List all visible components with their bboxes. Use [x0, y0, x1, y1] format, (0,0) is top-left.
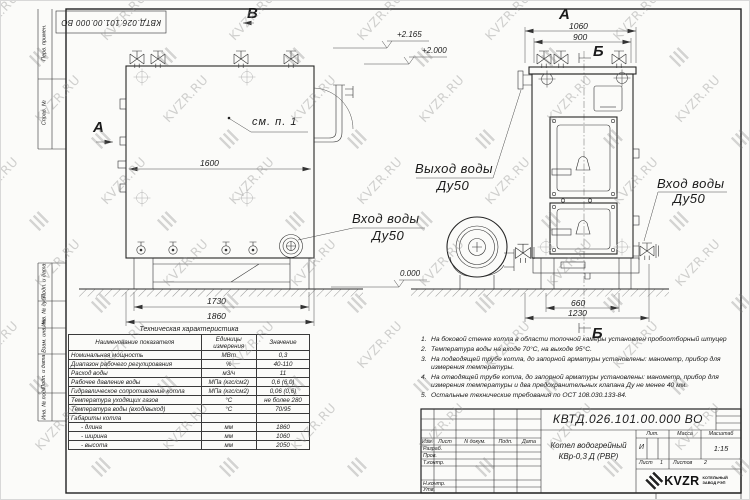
spec-header-unit: Единицы измерения	[201, 335, 256, 351]
dim-1730: 1730	[207, 297, 226, 306]
spec-row: Расход водым3/ч11	[69, 369, 310, 378]
spec-row: Температура уходящих газов°Сне более 280	[69, 396, 310, 405]
view-b-label: В	[247, 6, 258, 21]
tb-header-data: Дата	[517, 440, 541, 445]
tb-row-nkontr: Н.контр.	[423, 482, 445, 487]
tb-lit-value: И	[636, 444, 647, 451]
tb-header-ndoc: N докум.	[456, 440, 494, 445]
tb-lit-header: Лит.	[636, 432, 669, 437]
company-logo: KVZR КОТЕЛЬНЫЙ ЗАВОД РЭП	[638, 470, 738, 491]
dim-900: 900	[573, 33, 587, 42]
spec-header-row: Наименование показателя Единицы измерени…	[69, 335, 310, 351]
tb-sheet-label: Лист	[639, 461, 653, 466]
water-inlet-side-label: Вход воды	[657, 177, 725, 190]
view-a-top-label: А	[559, 7, 570, 22]
tb-header-izm: Изм.	[421, 440, 434, 445]
note-item: 2.Температура воды на входе 70°С, на вых…	[421, 346, 746, 354]
spec-table-block: Техническая характеристика Наименование …	[68, 326, 310, 450]
elevation-2165: +2.165	[397, 31, 422, 39]
spec-row: Диапазон рабочего регулирования%40-110	[69, 360, 310, 369]
tb-header-list: Лист	[434, 440, 456, 445]
blower-linework	[447, 217, 534, 289]
product-name-line2: КВр-0,3 Д (РВР)	[542, 453, 635, 461]
ground-lines	[79, 289, 669, 297]
water-inlet-side-dn-label: Ду50	[673, 192, 705, 205]
product-name-line1: Котел водогрейный	[542, 442, 635, 450]
dim-1600: 1600	[200, 159, 219, 168]
dim-660: 660	[571, 299, 585, 308]
frame-column-label: Перв. примен.	[42, 8, 48, 78]
spec-row: Рабочее давление водыМПа (кгс/см2)0,6 (6…	[69, 378, 310, 387]
dim-1860: 1860	[207, 312, 226, 321]
spec-header-value: Значение	[256, 335, 309, 351]
company-name: KVZR	[664, 474, 699, 488]
tb-sheets-label: Листов	[673, 461, 692, 466]
note-item: 4.На отводящей трубе котла, до запорной …	[421, 374, 746, 391]
tb-row-utv: Утв.	[423, 488, 435, 493]
spec-row: - высотамм2050	[69, 441, 310, 450]
tb-mass-header: Масса	[669, 432, 701, 437]
drawing-sheet: КВТД.026.101.00.000 ВО Перв. примен. Спр…	[0, 0, 750, 500]
water-inlet-front-label: Вход воды	[352, 212, 420, 225]
tb-row-prov: Пров.	[423, 454, 437, 459]
spec-header-name: Наименование показателя	[69, 335, 202, 351]
spec-row: - ширинамм1060	[69, 432, 310, 441]
kvzr-logo-icon	[646, 471, 664, 489]
see-note-label: см. п. 1	[252, 117, 297, 128]
tb-row-razrab: Разраб.	[423, 447, 442, 452]
tb-scale-value: 1:15	[701, 445, 741, 453]
section-b-top-label: Б	[593, 44, 604, 59]
frame-column-label: Взам. инв. №	[42, 327, 48, 353]
spec-row: - длинамм1860	[69, 423, 310, 432]
dim-1060: 1060	[569, 22, 588, 31]
tb-sheet-value: 1	[660, 461, 663, 466]
spec-row: Гидравлическое сопротивление котлаМПа (к…	[69, 387, 310, 396]
note-item: 1.На боковой стенке котла в области топо…	[421, 336, 746, 344]
water-outlet-dn-label: Ду50	[437, 179, 469, 192]
section-a-label: А	[93, 120, 104, 135]
frame-column-label: Справ. №	[42, 78, 48, 148]
corner-stamp: КВТД.026.101.00.000 ВО	[56, 11, 166, 33]
spec-table: Наименование показателя Единицы измерени…	[68, 334, 310, 450]
spec-row: Температура воды (вход/выход)°С70/95	[69, 405, 310, 414]
tb-sheets-value: 2	[704, 461, 707, 466]
dimension-lines	[96, 23, 727, 326]
title-block-doc-number: КВТД.026.101.00.000 ВО	[542, 413, 714, 425]
elevation-2000: +2.000	[422, 47, 447, 55]
note-item: 5.Остальные технические требования по ОС…	[421, 392, 746, 400]
water-inlet-front-dn-label: Ду50	[372, 229, 404, 242]
spec-table-title: Техническая характеристика	[68, 326, 310, 333]
tb-header-podp: Подп.	[494, 440, 517, 445]
note-item: 3.На подводящей трубе котла, до запорной…	[421, 356, 746, 373]
spec-row: Габариты котла	[69, 414, 310, 423]
dim-1230: 1230	[568, 309, 587, 318]
front-view-linework	[118, 51, 353, 289]
company-subtitle: КОТЕЛЬНЫЙ ЗАВОД РЭП	[702, 476, 727, 485]
spec-row: Номинальная мощностьМВт0,3	[69, 351, 310, 360]
format-cell: Формат А3	[658, 495, 739, 500]
elevation-0000: 0.000	[400, 270, 420, 278]
water-outlet-label: Выход воды	[415, 162, 493, 175]
tb-row-tkontr: Т.контр.	[423, 461, 444, 466]
frame-column-label: Инв. № подл.	[42, 392, 48, 420]
notes-block: 1.На боковой стенке котла в области топо…	[421, 336, 746, 402]
tb-scale-header: Масштаб	[701, 432, 741, 437]
